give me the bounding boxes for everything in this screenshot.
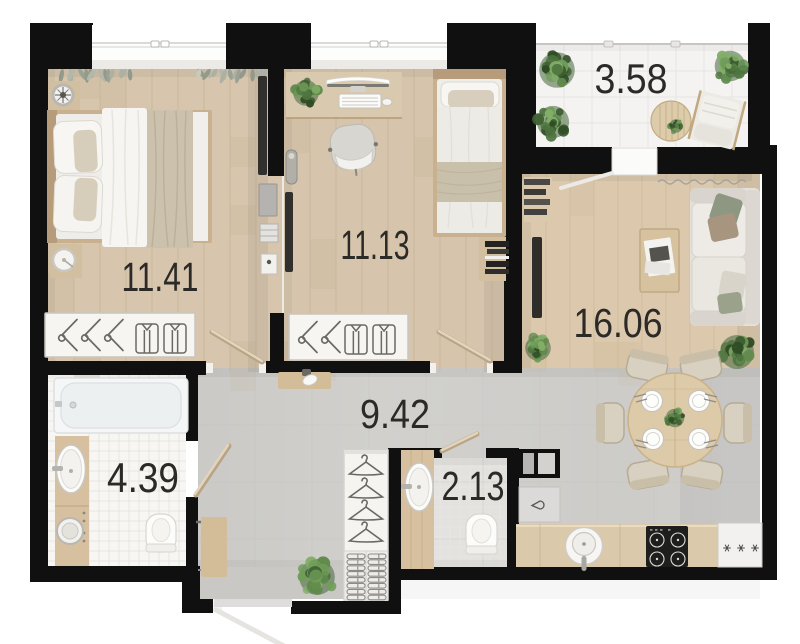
svg-text:11.41: 11.41: [122, 254, 199, 300]
svg-text:2.13: 2.13: [442, 463, 505, 509]
svg-text:16.06: 16.06: [574, 300, 663, 346]
svg-text:11.13: 11.13: [341, 222, 410, 268]
svg-text:9.42: 9.42: [360, 391, 430, 437]
svg-text:3.58: 3.58: [595, 55, 668, 102]
svg-text:4.39: 4.39: [107, 454, 179, 501]
